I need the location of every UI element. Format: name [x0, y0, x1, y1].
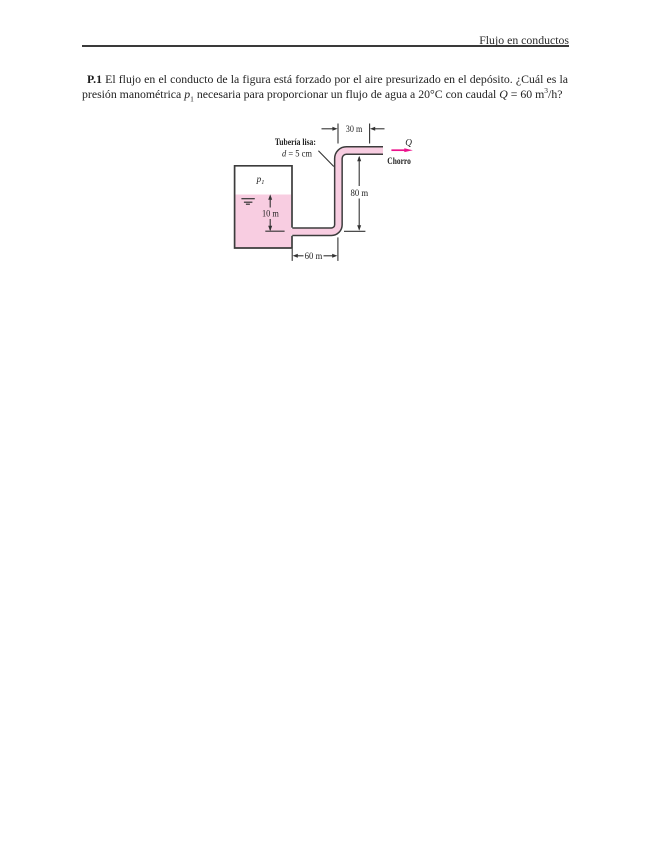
svg-text:80 m: 80 m	[351, 189, 369, 199]
svg-text:Chorro: Chorro	[387, 157, 411, 167]
svg-text:60 m: 60 m	[305, 252, 323, 262]
svg-text:d = 5 cm: d = 5 cm	[282, 149, 313, 159]
svg-text:Q: Q	[405, 139, 412, 149]
svg-text:p1: p1	[256, 174, 265, 186]
svg-text:30 m: 30 m	[346, 125, 363, 135]
svg-text:Tubería lisa:: Tubería lisa:	[275, 138, 316, 148]
svg-text:10 m: 10 m	[262, 210, 280, 220]
